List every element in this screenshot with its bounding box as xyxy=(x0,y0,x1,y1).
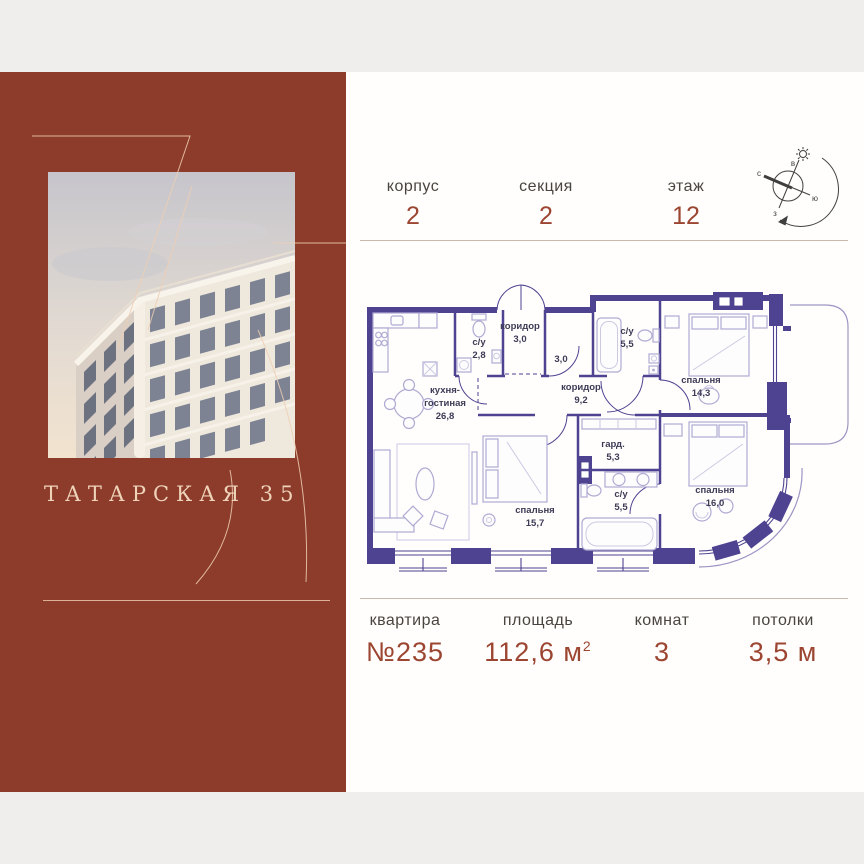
room-30-area: 3,0 xyxy=(554,354,567,365)
stat-ceiling-value: 3,5 м xyxy=(749,637,818,668)
room-wc3-label: с/у xyxy=(614,489,628,500)
footer-divider xyxy=(360,598,848,599)
stat-building-label: корпус xyxy=(387,178,439,196)
cloud-2 xyxy=(128,218,268,246)
room-wc2-label: с/у xyxy=(620,326,634,337)
room-wc3-area: 5,5 xyxy=(614,502,628,513)
floor-plan: коридор 3,0 с/у 2,8 3,0 с/у 5,5 коридор … xyxy=(355,272,851,574)
room-bed160-area: 16,0 xyxy=(706,498,725,509)
stat-rooms-value: 3 xyxy=(635,637,690,668)
kitchen-living-furniture xyxy=(373,313,477,540)
compass-icon: с в ю з xyxy=(746,144,844,240)
room-wc2-area: 5,5 xyxy=(620,339,634,350)
compass-south-label: ю xyxy=(812,194,818,203)
rounded-corner xyxy=(134,299,145,458)
stat-section: секция 2 xyxy=(519,178,573,231)
stat-floor-value: 12 xyxy=(668,202,705,231)
stat-area-sup: 2 xyxy=(583,638,592,654)
compass-arrow-arc xyxy=(780,158,838,226)
stat-area: площадь 112,6 м2 xyxy=(484,612,591,668)
room-hall-entry-label: коридор xyxy=(500,321,540,332)
plan-sheet: корпус 2 секция 2 этаж 12 xyxy=(346,72,864,792)
room-hall-entry-area: 3,0 xyxy=(513,334,526,345)
stat-ceiling-label: потолки xyxy=(749,612,818,630)
room-bed143-label: спальня xyxy=(681,375,720,386)
compass-east-label: в xyxy=(791,159,795,168)
building-photo-art xyxy=(48,172,295,458)
bedroom-143-furniture xyxy=(665,314,767,404)
room-bed143-area: 14,3 xyxy=(692,388,711,399)
stat-ceiling: потолки 3,5 м xyxy=(749,612,818,668)
panel-divider-line xyxy=(43,600,330,601)
header-divider xyxy=(360,240,848,241)
compass-north-label: с xyxy=(757,169,761,178)
stat-area-label: площадь xyxy=(484,612,591,630)
stat-building-value: 2 xyxy=(387,202,439,231)
stat-apartment-value: №235 xyxy=(366,637,444,668)
stat-area-value: 112,6 м2 xyxy=(484,637,591,668)
stat-apartment: квартира №235 xyxy=(366,612,444,668)
room-wc1-area: 2,8 xyxy=(472,350,485,361)
stat-rooms: комнат 3 xyxy=(635,612,690,668)
room-wc1-label: с/у xyxy=(472,337,486,348)
room-bed157-area: 15,7 xyxy=(526,518,545,529)
stat-section-value: 2 xyxy=(519,202,573,231)
stat-apartment-label: квартира xyxy=(366,612,444,630)
brand-panel: ТАТАРСКАЯ 35 xyxy=(0,72,346,792)
wardrobe-furniture xyxy=(582,419,656,429)
stat-rooms-label: комнат xyxy=(635,612,690,630)
project-title: ТАТАРСКАЯ 35 xyxy=(44,482,344,506)
room-corridor-area: 9,2 xyxy=(574,395,587,406)
room-bed157-label: спальня xyxy=(515,505,554,516)
room-kitchen-area: 26,8 xyxy=(436,411,455,422)
room-wardrobe-area: 5,3 xyxy=(606,452,619,463)
room-bed160-label: спальня xyxy=(695,485,734,496)
flyer-canvas: ТАТАРСКАЯ 35 корпус 2 секция 2 этаж 12 xyxy=(0,0,864,864)
cloud xyxy=(52,247,168,281)
room-kitchen-label1: кухня- xyxy=(430,385,460,396)
stat-floor-label: этаж xyxy=(668,178,705,196)
room-wardrobe-label: гард. xyxy=(601,439,624,450)
room-kitchen-label2: гостиная xyxy=(424,398,466,409)
room-labels: коридор 3,0 с/у 2,8 3,0 с/у 5,5 коридор … xyxy=(424,321,735,529)
stat-section-label: секция xyxy=(519,178,573,196)
building-photo xyxy=(48,172,295,458)
stat-floor: этаж 12 xyxy=(668,178,705,231)
room-corridor-label: коридор xyxy=(561,382,601,393)
compass-west-label: з xyxy=(773,209,777,218)
stat-building: корпус 2 xyxy=(387,178,439,231)
sun-icon xyxy=(796,147,810,161)
stat-area-number: 112,6 м xyxy=(484,637,583,667)
